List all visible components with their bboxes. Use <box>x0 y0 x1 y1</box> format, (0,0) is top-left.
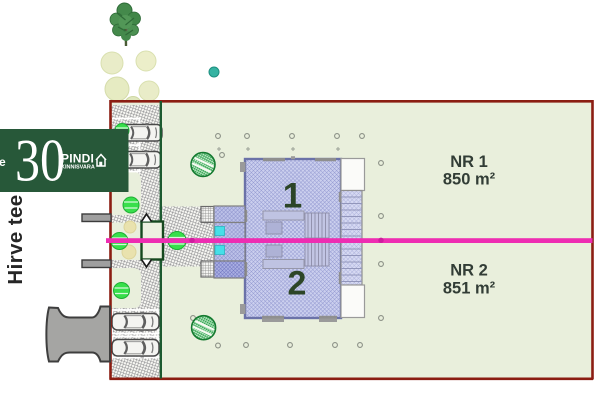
svg-text:30: 30 <box>15 128 65 194</box>
svg-text:1: 1 <box>283 177 302 216</box>
svg-text:NR 2: NR 2 <box>450 262 488 280</box>
svg-text:PINDI: PINDI <box>61 152 94 166</box>
svg-text:851 m²: 851 m² <box>443 280 496 298</box>
svg-text:e: e <box>0 155 6 169</box>
svg-text:Hirve tee: Hirve tee <box>4 194 27 284</box>
svg-text:KINNISVARA: KINNISVARA <box>61 165 95 171</box>
svg-text:850 m²: 850 m² <box>443 171 496 189</box>
svg-text:NR 1: NR 1 <box>450 153 488 171</box>
svg-text:2: 2 <box>288 265 307 303</box>
